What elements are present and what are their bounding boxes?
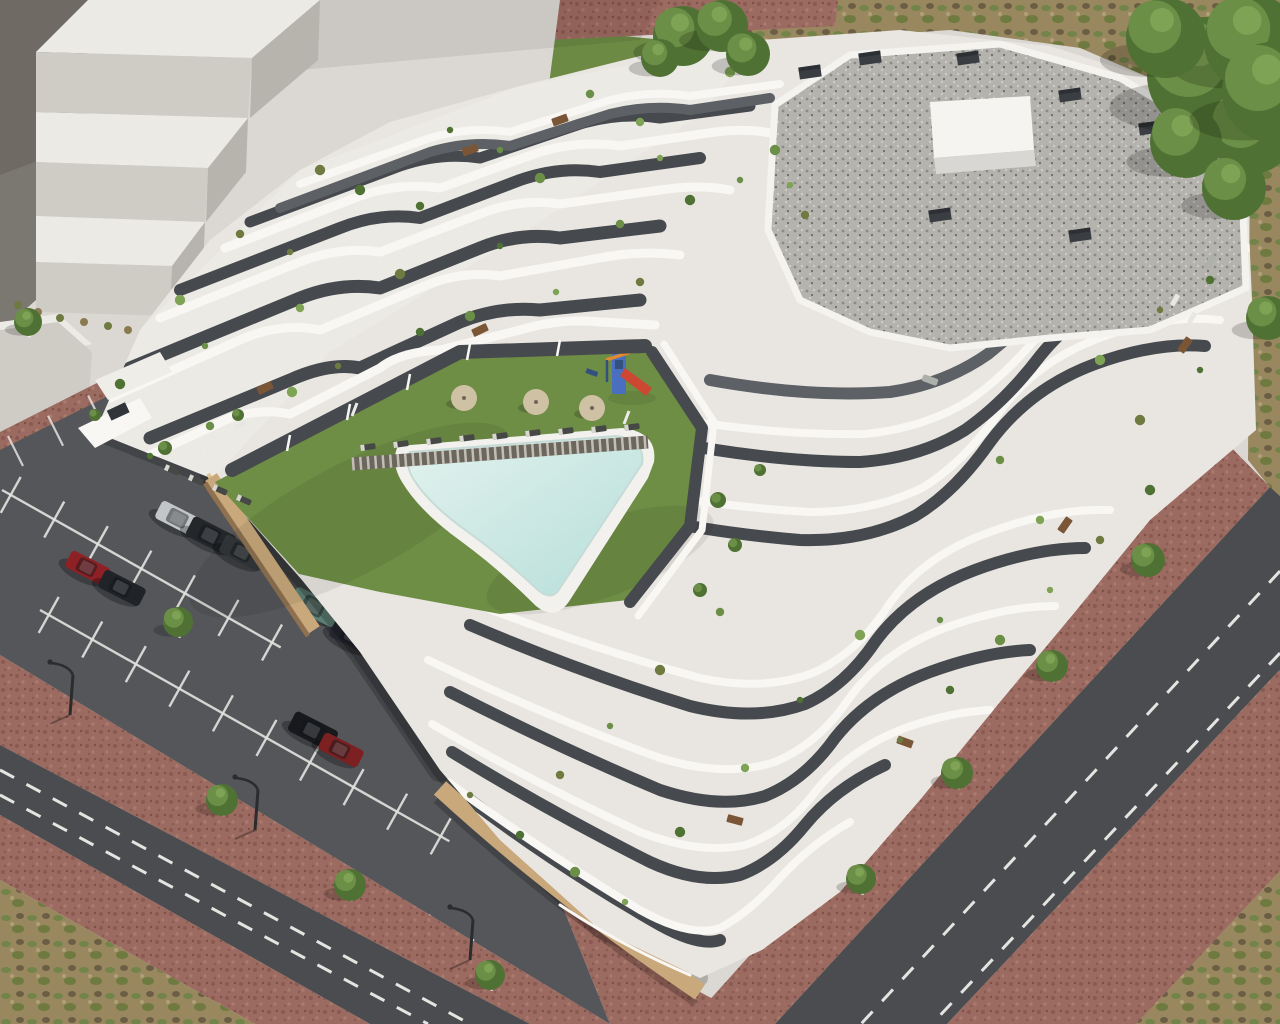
terrace-plant (556, 771, 564, 779)
terrace-plant (465, 311, 475, 321)
terrace-plant (616, 220, 624, 228)
penthouse (930, 96, 1034, 158)
terrace-plant (296, 304, 304, 312)
dry-shrub (14, 301, 22, 309)
terrace-plant (1145, 485, 1155, 495)
dry-shrub (124, 326, 132, 334)
palm-bush-light (754, 464, 761, 471)
tree-top (739, 38, 752, 51)
tree-top (484, 964, 493, 973)
terrace-plant (946, 686, 954, 694)
terrace-plant (741, 764, 749, 772)
tree-top (671, 14, 689, 32)
terrace-plant (607, 723, 613, 729)
terrace-plant (447, 127, 453, 133)
parasol-pole (534, 400, 538, 404)
palm-bush-light (232, 409, 239, 416)
terrace-plant (737, 177, 743, 183)
terrace-plant (416, 202, 424, 210)
terrace-plant (636, 278, 644, 286)
terrace-plant (202, 343, 208, 349)
terrace-plant (996, 456, 1004, 464)
terrace-plant (655, 665, 665, 675)
terrace-plant (236, 230, 244, 238)
palm-bush-light (694, 584, 702, 592)
terrace-plant (801, 211, 809, 219)
terrace-plant (1096, 536, 1104, 544)
terrace-plant (570, 867, 580, 877)
terrace-plant (675, 827, 685, 837)
tree-top (1046, 654, 1056, 664)
tree-top (1141, 547, 1151, 557)
lamp-head (447, 904, 452, 909)
terrace-plant (497, 147, 503, 153)
terrace-plant (1206, 276, 1214, 284)
terrace-plant (636, 118, 644, 126)
terrace-plant (395, 269, 405, 279)
dry-shrub (80, 318, 88, 326)
lounger-pillow (492, 434, 497, 440)
terrace-plant (416, 328, 424, 336)
terrace-plant (1157, 307, 1163, 313)
terrace-plant (855, 630, 865, 640)
lounger-pillow (624, 425, 629, 431)
tree-top (712, 7, 728, 23)
lounger-pillow (558, 429, 563, 435)
playground-opening (615, 360, 623, 369)
terrace-plant (287, 249, 293, 255)
terrace-plant (315, 165, 325, 175)
terrace-plant (115, 379, 125, 389)
terrace-plant (797, 697, 803, 703)
terrace-plant (1095, 355, 1105, 365)
terrace-plant (1047, 587, 1053, 593)
terrace-plant (657, 155, 663, 161)
tree-top (1221, 164, 1240, 183)
terrace-plant (355, 185, 365, 195)
terrace-plant (1135, 415, 1145, 425)
tree-top (172, 611, 181, 620)
aerial-render-scene (0, 0, 1280, 1024)
terrace-plant (1036, 516, 1044, 524)
lamp-head (47, 659, 52, 664)
terrace-plant (467, 792, 473, 798)
terrace-plant (770, 145, 780, 155)
terrace-plant (553, 289, 559, 295)
tree-top (1233, 6, 1262, 35)
terrace-plant (535, 173, 545, 183)
terrace-plant (897, 737, 903, 743)
lounger-pillow (360, 445, 365, 451)
palm-bush-light (729, 539, 737, 547)
palm-bush-light (711, 493, 721, 503)
lounger-pillow (426, 439, 431, 445)
tree-top (1150, 8, 1174, 32)
lounger-pillow (591, 427, 596, 433)
terrace-plant (335, 363, 341, 369)
terrace-plant (716, 608, 724, 616)
terrace-plant (497, 243, 503, 249)
terrace-plant (206, 422, 214, 430)
terrace-plant (147, 453, 153, 459)
terrace-plant (937, 617, 943, 623)
tree-top (216, 788, 226, 798)
terrace-plant (287, 387, 297, 397)
lamp-head (232, 774, 237, 779)
parasol-pole (462, 396, 466, 400)
tree-top (855, 868, 864, 877)
lounger-pillow (393, 442, 398, 448)
tree-top (1259, 302, 1272, 315)
terrace-plant (1197, 367, 1203, 373)
palm-bush-light (89, 409, 96, 416)
terrace-plant (685, 195, 695, 205)
dry-shrub (56, 314, 64, 322)
dry-shrub (104, 322, 112, 330)
terrace-plant (995, 635, 1005, 645)
terrace-plant (175, 295, 185, 305)
palm-bush-light (159, 442, 167, 450)
terrace-plant (586, 90, 594, 98)
terrace-plant (622, 899, 628, 905)
tree-top (652, 44, 663, 55)
terrace-plant (516, 831, 524, 839)
tree-top (22, 312, 30, 320)
parasol-pole (590, 406, 594, 410)
lounger-pillow (459, 436, 464, 442)
tree-top (344, 873, 354, 883)
tree-top (951, 761, 961, 771)
terrace-plant (787, 182, 793, 188)
lounger-pillow (525, 431, 530, 437)
